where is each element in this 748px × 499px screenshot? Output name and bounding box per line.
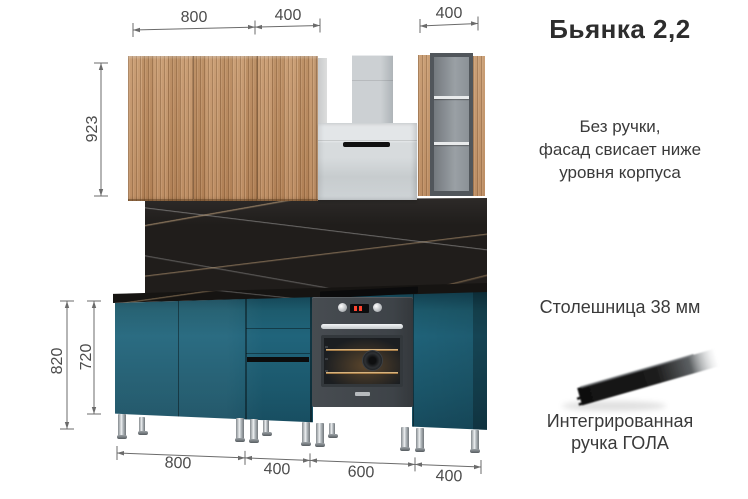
dim-label-bottom-800: 800 bbox=[164, 455, 191, 474]
oven-knob bbox=[373, 303, 382, 312]
oven-brand-label bbox=[355, 392, 370, 396]
door-seam bbox=[257, 56, 258, 199]
kitchen-product-sheet: 800 400 400 923 820 720 800 400 600 400 … bbox=[0, 0, 748, 499]
gola-handle-note: Интегрированная ручка ГОЛА bbox=[500, 410, 740, 454]
oven-fan bbox=[362, 350, 383, 371]
glass-cabinet-interior bbox=[434, 57, 469, 191]
cabinet-leg bbox=[302, 422, 310, 443]
dim-label-top-400: 400 bbox=[275, 7, 302, 25]
drawer-seam bbox=[246, 353, 310, 354]
oven bbox=[312, 297, 413, 407]
note-line: ручка ГОЛА bbox=[500, 432, 740, 454]
cabinet-leg bbox=[416, 428, 424, 449]
drawer-seam bbox=[246, 328, 310, 329]
oven-knob bbox=[338, 303, 347, 312]
range-hood-body bbox=[318, 123, 417, 200]
chimney-fold-line bbox=[352, 80, 393, 81]
cabinet-leg bbox=[236, 418, 244, 439]
oven-door-window bbox=[321, 335, 403, 387]
cabinet-seam bbox=[413, 291, 414, 432]
base-cabinet-run bbox=[115, 291, 487, 432]
note-line: фасад свисает ниже bbox=[500, 138, 740, 161]
cabinet-leg bbox=[329, 423, 335, 435]
door-seam bbox=[193, 56, 194, 199]
wall-unit-wood-strip-left bbox=[418, 55, 430, 196]
oven-rack-notch bbox=[325, 346, 328, 348]
hood-chimney bbox=[352, 55, 393, 125]
gola-handle-image bbox=[552, 336, 730, 416]
note-line: Без ручки, bbox=[500, 115, 740, 138]
dim-label-top-800: 800 bbox=[181, 9, 208, 27]
countertop-note: Столешница 38 мм bbox=[500, 296, 740, 318]
door-seam bbox=[178, 291, 179, 432]
oven-shelf bbox=[326, 372, 398, 374]
display-digit bbox=[354, 306, 357, 311]
cabinet-leg bbox=[118, 414, 126, 436]
oven-handle bbox=[321, 324, 403, 329]
dim-label-720: 720 bbox=[78, 344, 96, 371]
hood-crease-line bbox=[318, 140, 417, 141]
cabinet-leg bbox=[139, 417, 145, 432]
dim-label-bottom-400a: 400 bbox=[263, 461, 290, 480]
dim-label-top-right-400: 400 bbox=[436, 5, 463, 23]
dim-label-820: 820 bbox=[49, 348, 67, 375]
note-line: Интегрированная bbox=[500, 410, 740, 432]
note-line: уровня корпуса bbox=[500, 161, 740, 184]
page-title: Бьянка 2,2 bbox=[500, 14, 740, 45]
dim-label-bottom-600: 600 bbox=[347, 464, 374, 483]
no-handle-note: Без ручки, фасад свисает ниже уровня кор… bbox=[500, 115, 740, 184]
base-cabinet-side-panel bbox=[473, 291, 487, 432]
wall-cabinet-glass-frame bbox=[430, 53, 473, 196]
display-digit bbox=[359, 306, 362, 311]
dim-label-923: 923 bbox=[84, 116, 102, 143]
under-oven-gap bbox=[313, 405, 412, 437]
oven-rack-notch bbox=[325, 358, 328, 360]
backsplash-marble bbox=[145, 198, 487, 294]
cabinet-leg bbox=[250, 419, 258, 440]
hood-vent-strip bbox=[343, 142, 390, 147]
oven-display bbox=[350, 304, 369, 313]
oven-shelf bbox=[326, 349, 398, 351]
cabinet-leg bbox=[401, 427, 409, 448]
dim-label-bottom-400b: 400 bbox=[435, 468, 462, 487]
cabinet-shelf bbox=[434, 142, 469, 145]
cabinet-leg bbox=[471, 430, 479, 450]
cabinet-leg bbox=[316, 423, 324, 444]
gola-handle-recess bbox=[247, 357, 309, 362]
cabinet-shelf bbox=[434, 96, 469, 99]
wall-cabinet-wood bbox=[128, 56, 318, 201]
wall-unit-wood-strip-right bbox=[473, 56, 485, 196]
cabinet-leg bbox=[263, 420, 269, 433]
